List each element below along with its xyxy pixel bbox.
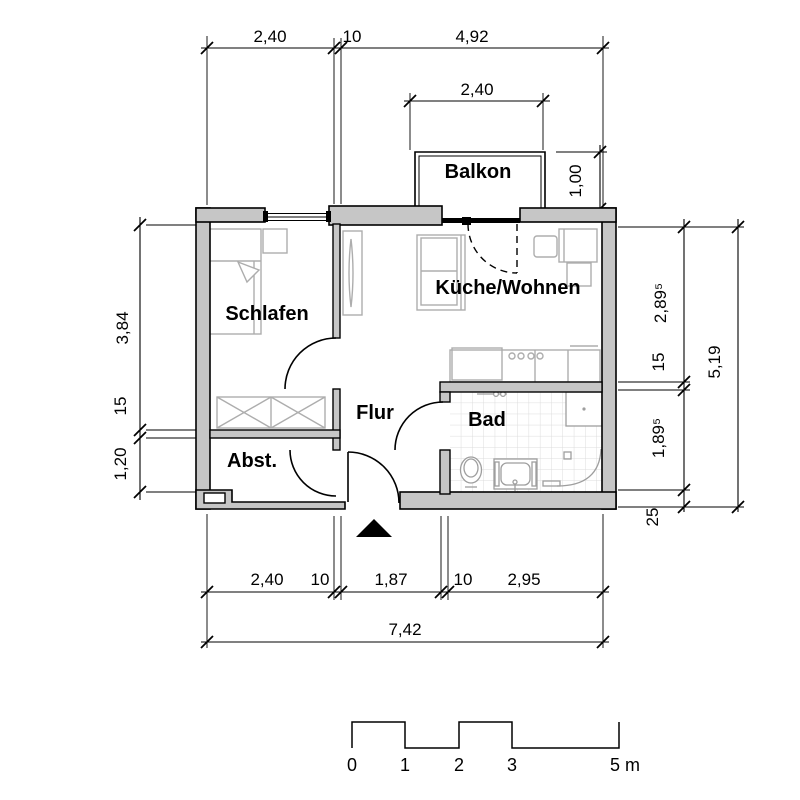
dim-bottom-2: 10 [311,570,330,589]
door-abst [290,450,336,496]
wall-niche [204,493,225,503]
nightstand [263,229,287,253]
wall-bad-left-upper [440,392,450,402]
balcony-door-threshold [442,217,520,225]
room-label-abst: Abst. [227,450,277,472]
wall-top-right [520,208,616,222]
dim-right-4: 25 [643,508,662,527]
dim-right-1: 2,89⁵ [651,283,670,323]
door-balcony-dashed [468,224,517,273]
room-label-schlafen: Schlafen [225,303,308,325]
dim-right-2: 15 [649,353,668,372]
dim-balcony-depth: 1,00 [566,164,585,197]
window-schlafen [263,211,331,222]
wardrobe [217,397,325,428]
extension-lines [146,36,744,648]
dim-bottom-4: 10 [454,570,473,589]
kitchen-counter [450,346,600,382]
room-label-kueche: Küche/Wohnen [435,277,580,299]
scale-label-3: 3 [507,755,517,775]
wall-schlafen-kueche [333,224,340,338]
wall-schlafen-abst [210,430,340,438]
wall-bottom-right [400,492,616,509]
stove-burner [518,353,524,359]
entrance-arrow [356,519,392,537]
floor-plan-drawing: 2,40 10 4,92 2,40 1,00 3,84 15 1,20 2,89… [0,0,800,800]
dim-balcony-width: 2,40 [460,80,493,99]
wall-top-left [196,208,265,222]
wall-left [196,208,210,509]
dim-left-1: 3,84 [113,311,132,344]
shower [566,392,602,426]
dim-top-1: 2,40 [253,27,286,46]
sink [494,459,537,491]
dimension-lines [134,42,744,648]
room-label-flur: Flur [356,402,394,424]
dim-left-2: 15 [111,397,130,416]
door-schlafen [285,338,336,389]
wall-bad-top [440,382,602,392]
dim-right-3: 1,89⁵ [649,418,668,458]
stove-burner [528,353,534,359]
door-entrance [348,452,399,503]
dim-left-3: 1,20 [111,447,130,480]
scale-label-0: 0 [347,755,357,775]
dim-bottom-total: 7,42 [388,620,421,639]
floor-plan-page: 2,40 10 4,92 2,40 1,00 3,84 15 1,20 2,89… [0,0,800,800]
wall-bad-left-lower [440,450,450,494]
scale-label-5: 5 m [610,755,640,775]
shelf [343,231,362,315]
dim-bottom-5: 2,95 [507,570,540,589]
room-label-balkon: Balkon [445,161,512,183]
scale-bar: 0 1 2 3 5 m [347,722,640,775]
door-bad [395,402,443,450]
dim-top-2: 10 [343,27,362,46]
wall-right [602,208,616,509]
scale-label-2: 2 [454,755,464,775]
stove-burner [509,353,515,359]
dim-top-3: 4,92 [455,27,488,46]
dim-bottom-3: 1,87 [374,570,407,589]
wall-top-pier [329,206,442,225]
dim-bottom-1: 2,40 [250,570,283,589]
room-label-bad: Bad [468,409,506,431]
stove-burner [537,353,543,359]
wall-flur-abst [333,389,340,450]
dim-right-total: 5,19 [705,345,724,378]
scale-label-1: 1 [400,755,410,775]
